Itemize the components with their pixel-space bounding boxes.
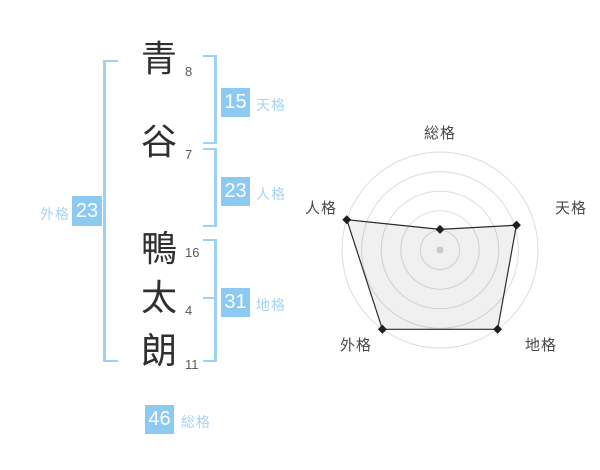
radar-axis-label-天格: 天格 bbox=[555, 200, 587, 217]
chikaku-label: 地格 bbox=[256, 295, 286, 315]
chikaku-value-badge: 31 bbox=[221, 288, 250, 317]
stroke-count-1: 8 bbox=[185, 64, 192, 79]
radar-axis-label-総格: 総格 bbox=[424, 125, 456, 142]
jinkaku-label: 人格 bbox=[256, 184, 286, 204]
gaikaku-value-badge: 23 bbox=[72, 196, 102, 226]
stroke-count-5: 11 bbox=[185, 357, 199, 372]
soukaku-value-badge: 46 bbox=[145, 405, 174, 434]
gaikaku-bracket bbox=[103, 60, 118, 362]
radar-axis-label-地格: 地格 bbox=[525, 337, 557, 354]
stroke-count-3: 16 bbox=[185, 245, 199, 260]
name-char-3: 鴨 bbox=[139, 230, 179, 268]
soukaku-label: 総格 bbox=[181, 412, 211, 432]
stroke-count-4: 4 bbox=[185, 303, 192, 318]
radar-axis-label-人格: 人格 bbox=[305, 200, 337, 217]
radar-axis-label-外格: 外格 bbox=[340, 337, 372, 354]
name-char-5: 朗 bbox=[139, 332, 179, 370]
jinkaku-value-badge: 23 bbox=[221, 177, 250, 206]
radar-center-dot bbox=[437, 247, 444, 254]
jinkaku-bracket bbox=[203, 148, 217, 227]
name-char-1: 青 bbox=[139, 40, 179, 78]
tenkaku-value-badge: 15 bbox=[221, 88, 250, 117]
stroke-count-2: 7 bbox=[185, 147, 192, 162]
name-char-4: 太 bbox=[139, 279, 179, 317]
gaikaku-label: 外格 bbox=[40, 204, 70, 224]
chikaku-bracket-middle-tick bbox=[203, 297, 214, 299]
radar-chart: 総格天格地格外格人格 bbox=[300, 113, 600, 365]
radar-polygon bbox=[347, 220, 517, 330]
chikaku-bracket bbox=[203, 239, 217, 362]
tenkaku-label: 天格 bbox=[256, 95, 286, 115]
name-fortune-page: 青 8 谷 7 鴨 16 太 4 朗 11 15 天格 23 人格 31 地格 … bbox=[0, 0, 600, 470]
radar-chart-area: 総格天格地格外格人格 bbox=[300, 113, 600, 365]
tenkaku-bracket bbox=[203, 55, 217, 144]
name-char-2: 谷 bbox=[139, 123, 179, 161]
